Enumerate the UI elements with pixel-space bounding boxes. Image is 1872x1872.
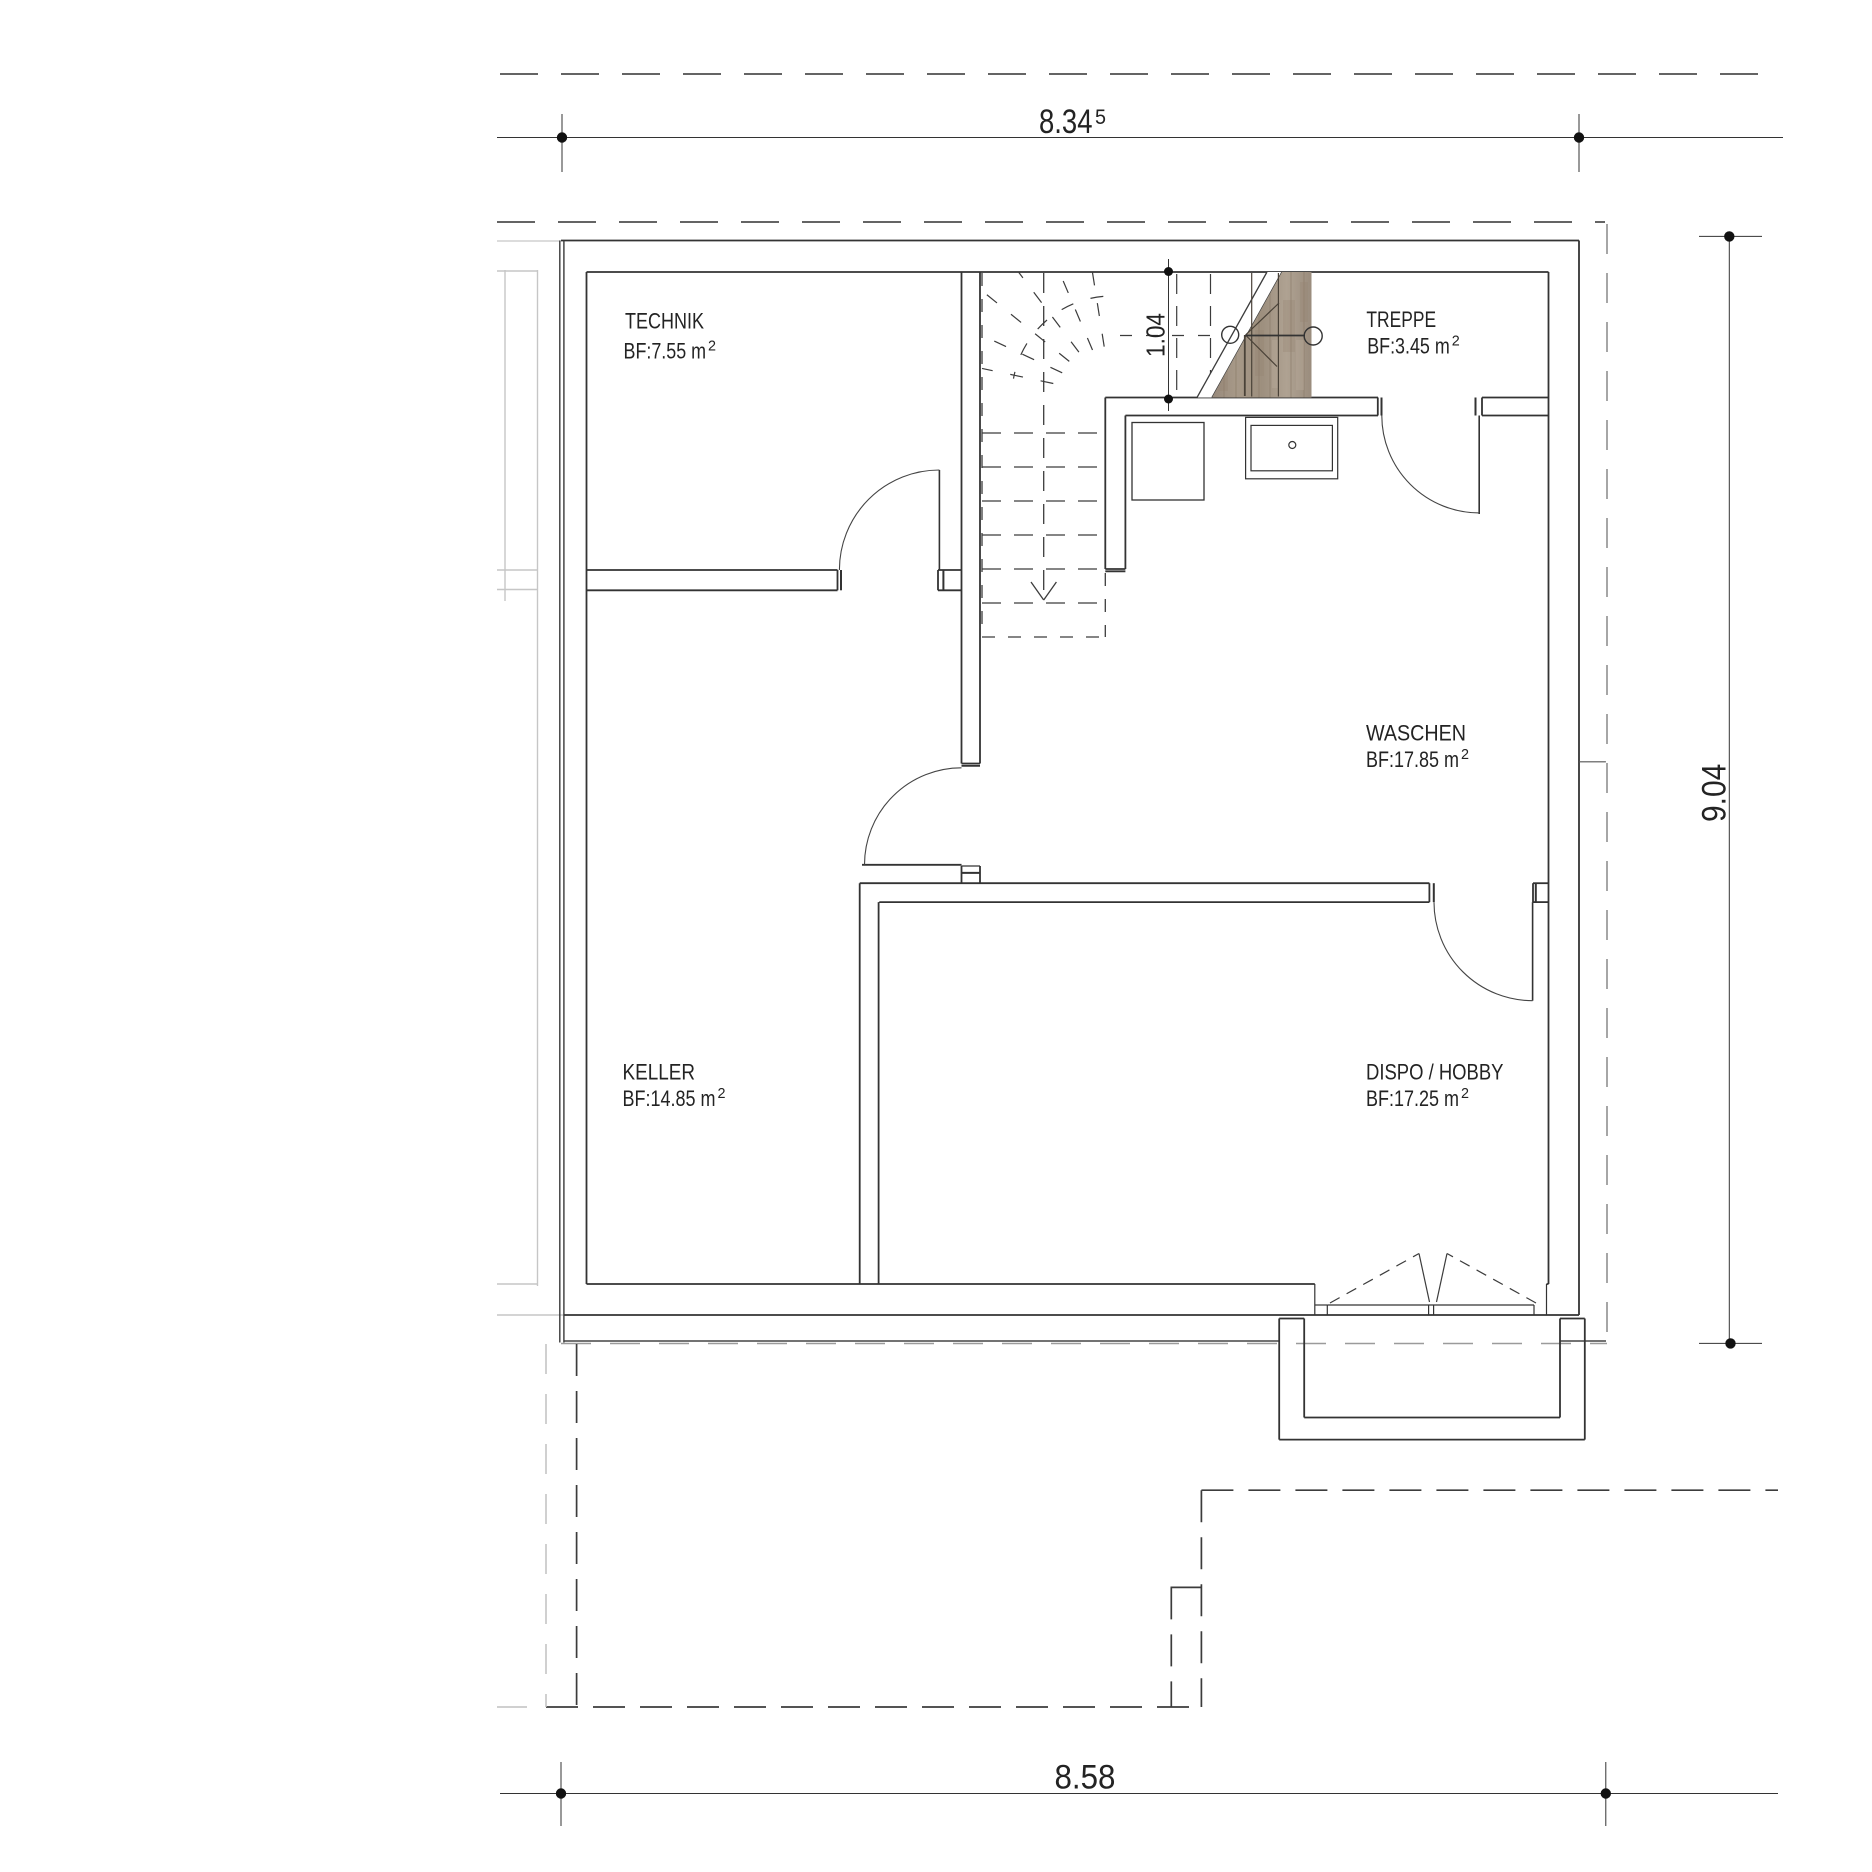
svg-text:1.04: 1.04 bbox=[1141, 313, 1171, 357]
svg-text:TECHNIK: TECHNIK bbox=[625, 308, 704, 333]
svg-text:2: 2 bbox=[718, 1085, 726, 1102]
svg-text:TREPPE: TREPPE bbox=[1366, 307, 1436, 332]
svg-text:BF:14.85 m: BF:14.85 m bbox=[623, 1086, 716, 1111]
svg-text:BF:7.55 m: BF:7.55 m bbox=[624, 339, 707, 364]
svg-text:BF:17.85 m: BF:17.85 m bbox=[1366, 747, 1459, 772]
svg-text:9.04: 9.04 bbox=[1695, 764, 1733, 822]
svg-text:BF:17.25 m: BF:17.25 m bbox=[1366, 1086, 1459, 1111]
svg-text:2: 2 bbox=[1452, 332, 1460, 349]
svg-text:2: 2 bbox=[1461, 1085, 1469, 1102]
svg-text:KELLER: KELLER bbox=[623, 1060, 696, 1085]
svg-text:5: 5 bbox=[1095, 106, 1106, 129]
svg-text:DISPO / HOBBY: DISPO / HOBBY bbox=[1366, 1060, 1504, 1085]
svg-text:8.34: 8.34 bbox=[1039, 103, 1093, 141]
svg-text:WASCHEN: WASCHEN bbox=[1366, 721, 1466, 746]
svg-text:2: 2 bbox=[1461, 746, 1469, 763]
svg-text:8.58: 8.58 bbox=[1055, 1759, 1116, 1797]
svg-text:BF:3.45 m: BF:3.45 m bbox=[1367, 333, 1450, 358]
svg-text:2: 2 bbox=[708, 338, 716, 355]
